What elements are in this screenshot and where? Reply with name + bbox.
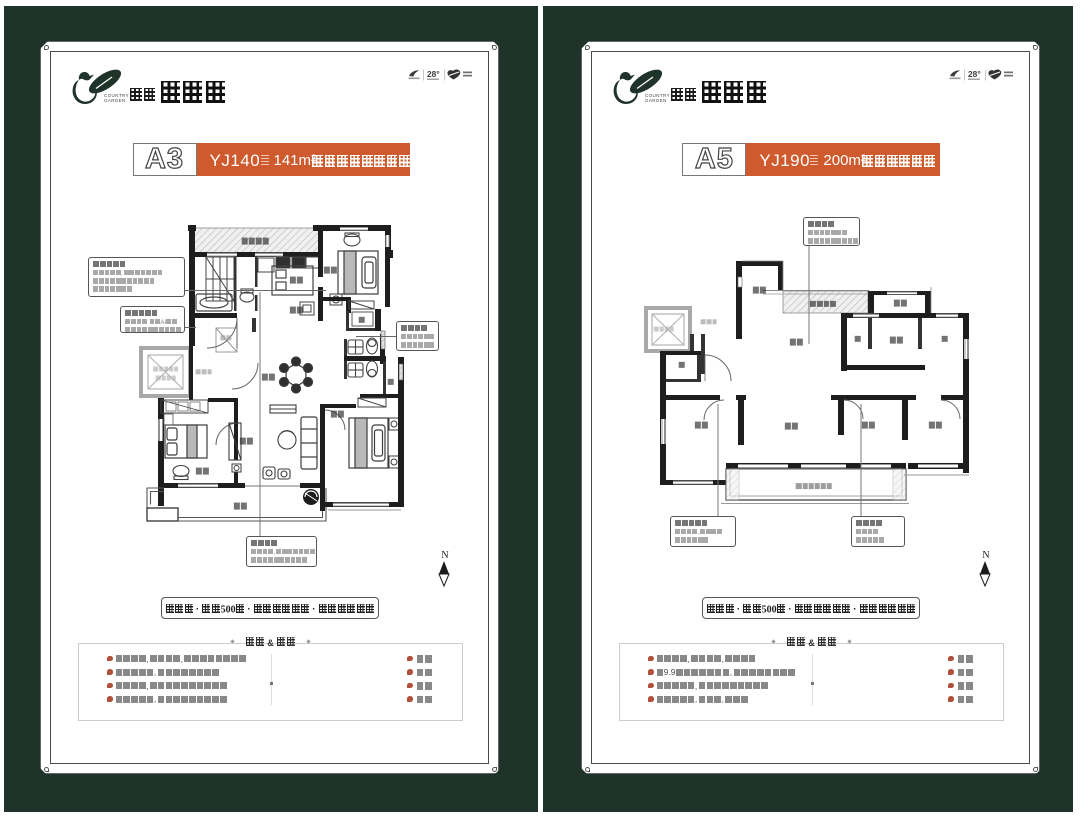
svg-text:28°: 28°	[968, 69, 981, 79]
svg-text:28°: 28°	[427, 69, 440, 79]
